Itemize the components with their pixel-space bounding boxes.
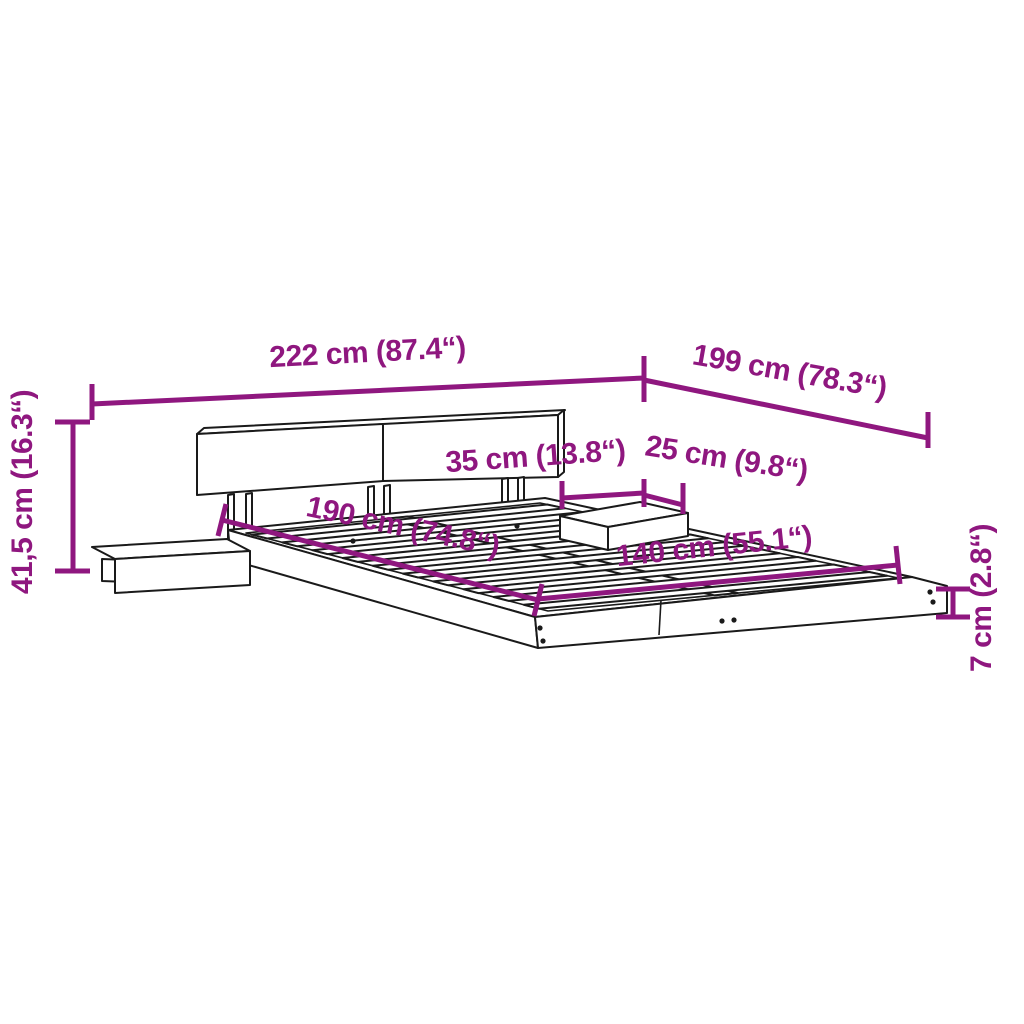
screw-dot <box>514 523 519 528</box>
dimension-total-width: 222 cm (87.4“) <box>92 331 644 420</box>
screw-dot <box>537 625 542 630</box>
left-nightstand <box>92 539 250 593</box>
dimension-label-nightstand-depth: 25 cm (9.8“) <box>643 429 810 487</box>
dimension-nightstand-depth: 25 cm (9.8“) <box>643 429 810 514</box>
screw-dot <box>927 589 932 594</box>
screw-dot <box>540 638 545 643</box>
dimension-total-height: 41,5 cm (16.3“) <box>6 390 90 594</box>
left-nightstand-front <box>115 551 250 593</box>
bed-frame-dimension-diagram: 222 cm (87.4“) 199 cm (78.3“) 41,5 cm (1… <box>0 0 1024 1024</box>
screw-dot <box>731 617 736 622</box>
screw-dot <box>719 618 724 623</box>
headboard-panel-left <box>197 424 383 495</box>
dimension-label-total-height: 41,5 cm (16.3“) <box>6 390 39 594</box>
screw-dot <box>930 599 935 604</box>
screw-dot <box>350 538 355 543</box>
dimension-total-depth: 199 cm (78.3“) <box>644 338 928 448</box>
dimension-label-base-height: 7 cm (2.8“) <box>965 524 998 672</box>
dimension-label-total-width: 222 cm (87.4“) <box>269 331 467 374</box>
